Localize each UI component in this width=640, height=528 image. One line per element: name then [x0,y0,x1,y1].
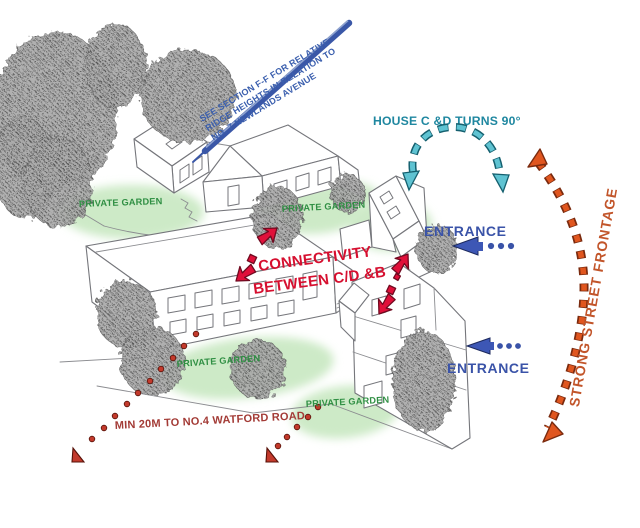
site-sketch-canvas: SEE SECTION F-F FOR RELATIVE RIDGE HEIGH… [0,0,640,528]
entrance-lower-label: ENTRANCE [447,360,530,376]
street-frontage-annotation: STRONG STREET FRONTAGE [528,149,620,442]
tree [24,137,92,227]
tree [393,331,455,431]
site-diagram: SEE SECTION F-F FOR RELATIVE RIDGE HEIGH… [0,0,640,528]
entrance-lower-arrow-icon [467,338,521,354]
tree [86,24,146,108]
watford-label: MIN 20M TO NO.4 WATFORD ROAD [115,410,306,432]
tree [230,340,286,398]
watford-arrow-icon [266,448,278,462]
watford-arrow-icon [72,448,84,462]
tree [120,327,184,395]
watford-label-group: MIN 20M TO NO.4 WATFORD ROAD [115,410,306,432]
entrance-upper-arrow-icon [453,237,514,255]
entrance-upper-label: ENTRANCE [424,223,507,239]
turn-arc-icon [403,127,509,192]
